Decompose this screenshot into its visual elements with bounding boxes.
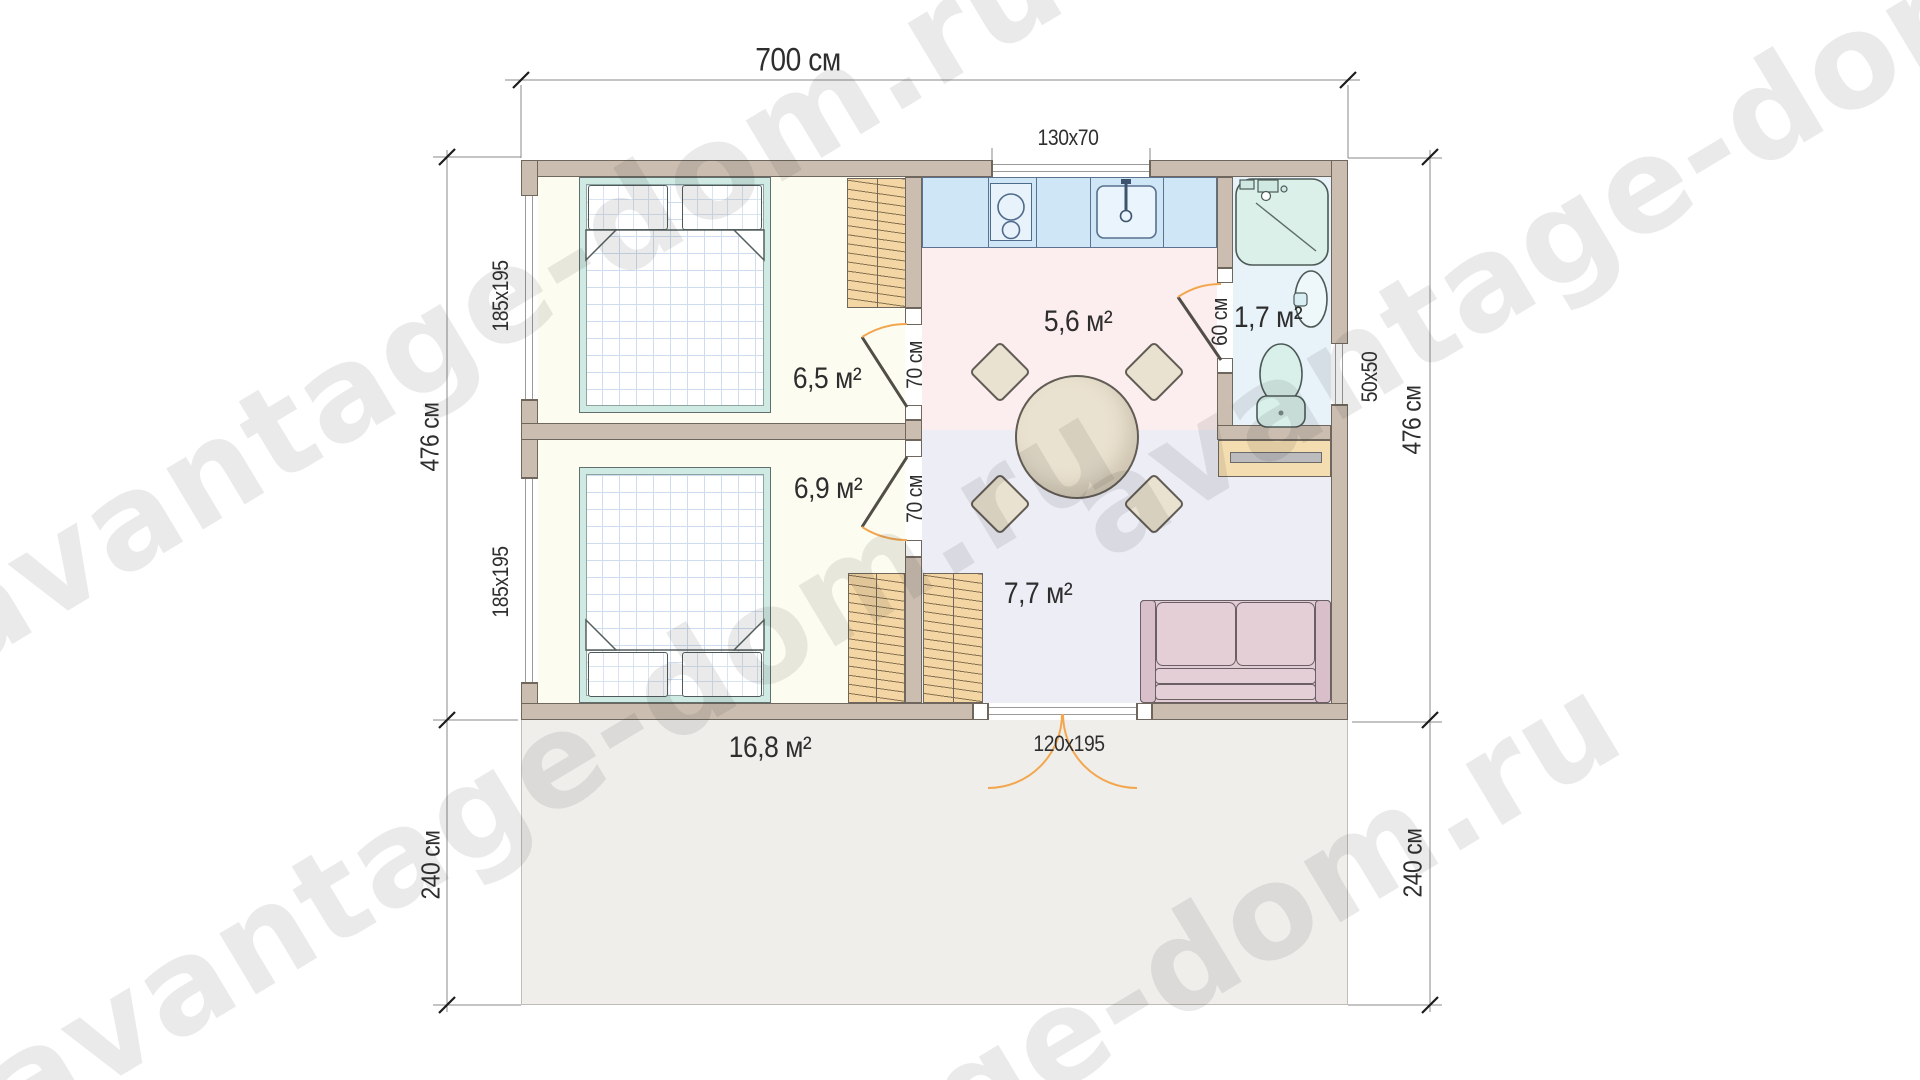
window-kitchen xyxy=(992,160,1150,177)
terrace-floor xyxy=(521,720,1348,1005)
dining-table xyxy=(1015,375,1139,499)
room-area-bathroom: 1,7 м² xyxy=(1234,301,1302,335)
sofa-seat xyxy=(1155,684,1316,700)
window-bedroom1 xyxy=(521,195,538,400)
room-area-bedroom1: 6,5 м² xyxy=(793,362,861,396)
dimension-label-left-476: 476 см xyxy=(415,402,446,471)
stove xyxy=(990,183,1032,241)
wall-right-upper xyxy=(1331,160,1348,344)
counter-divider xyxy=(988,178,989,247)
door-jamb xyxy=(905,440,922,457)
wall-bottom-left xyxy=(521,703,973,720)
door-label-bathroom: 60 см xyxy=(1207,298,1233,346)
wall-bottom-right xyxy=(1152,703,1348,720)
door-jamb xyxy=(1217,358,1233,373)
terrace-door-glazing xyxy=(988,703,1137,720)
dimension-label-right-240: 240 см xyxy=(1398,828,1429,897)
counter-divider xyxy=(1163,178,1164,247)
wall-top-right xyxy=(1150,160,1348,177)
room-area-living: 7,7 м² xyxy=(1004,577,1072,611)
window-label-bedroom1: 185x195 xyxy=(488,260,514,331)
door-jamb xyxy=(1137,703,1152,720)
sofa-armrest xyxy=(1315,600,1331,703)
floor-plan-canvas: 700 см 476 см 476 см 240 см 240 см 185x1… xyxy=(0,0,1920,1080)
pillow xyxy=(588,652,668,697)
counter-divider xyxy=(1036,178,1037,247)
counter-divider xyxy=(1090,178,1091,247)
wall-between-bedrooms xyxy=(521,423,922,440)
pillow xyxy=(682,652,762,697)
sofa-back-cushion xyxy=(1156,602,1236,666)
door-jamb xyxy=(1217,268,1233,283)
wall-bathroom-left-a xyxy=(1217,177,1233,268)
door-jamb xyxy=(905,405,922,420)
door-jamb xyxy=(973,703,988,720)
window-label-bedroom2: 185x195 xyxy=(488,546,514,617)
pillow xyxy=(682,185,762,230)
window-label-kitchen: 130x70 xyxy=(1038,125,1099,151)
wardrobe-bedroom2 xyxy=(848,573,905,703)
wall-right-lower xyxy=(1331,405,1348,720)
wall-left-upper xyxy=(521,160,538,196)
sofa-seat xyxy=(1155,668,1316,684)
wardrobe-living xyxy=(923,573,983,703)
dimension-label-top: 700 см xyxy=(755,42,841,79)
door-label-terrace: 120x195 xyxy=(1033,731,1104,757)
wall-bedrooms-hall-c xyxy=(905,557,922,703)
wall-top-left xyxy=(521,160,992,177)
dimension-label-right-476: 476 см xyxy=(1397,385,1428,454)
dimension-label-left-240: 240 см xyxy=(416,830,447,899)
wall-bathroom-bottom xyxy=(1217,425,1331,440)
sofa-back-cushion xyxy=(1236,602,1315,666)
wall-bedrooms-hall-a xyxy=(905,177,922,308)
window-label-bathroom: 50x50 xyxy=(1357,352,1383,403)
room-area-kitchen: 5,6 м² xyxy=(1044,305,1112,339)
room-area-bedroom2: 6,9 м² xyxy=(794,472,862,506)
desk-item xyxy=(1230,452,1322,463)
pillow xyxy=(588,185,668,230)
kitchen-counter xyxy=(922,177,1217,248)
door-jamb xyxy=(905,540,922,557)
door-label-bedroom1: 70 см xyxy=(902,341,928,389)
window-bathroom xyxy=(1331,343,1348,405)
room-area-terrace: 16,8 м² xyxy=(729,731,812,765)
sofa-armrest xyxy=(1140,600,1156,703)
wall-bedrooms-hall-b xyxy=(905,420,922,440)
door-jamb xyxy=(905,308,922,325)
door-label-bedroom2: 70 см xyxy=(902,475,928,523)
window-bedroom2 xyxy=(521,478,538,683)
wardrobe-bedroom1 xyxy=(847,178,907,308)
